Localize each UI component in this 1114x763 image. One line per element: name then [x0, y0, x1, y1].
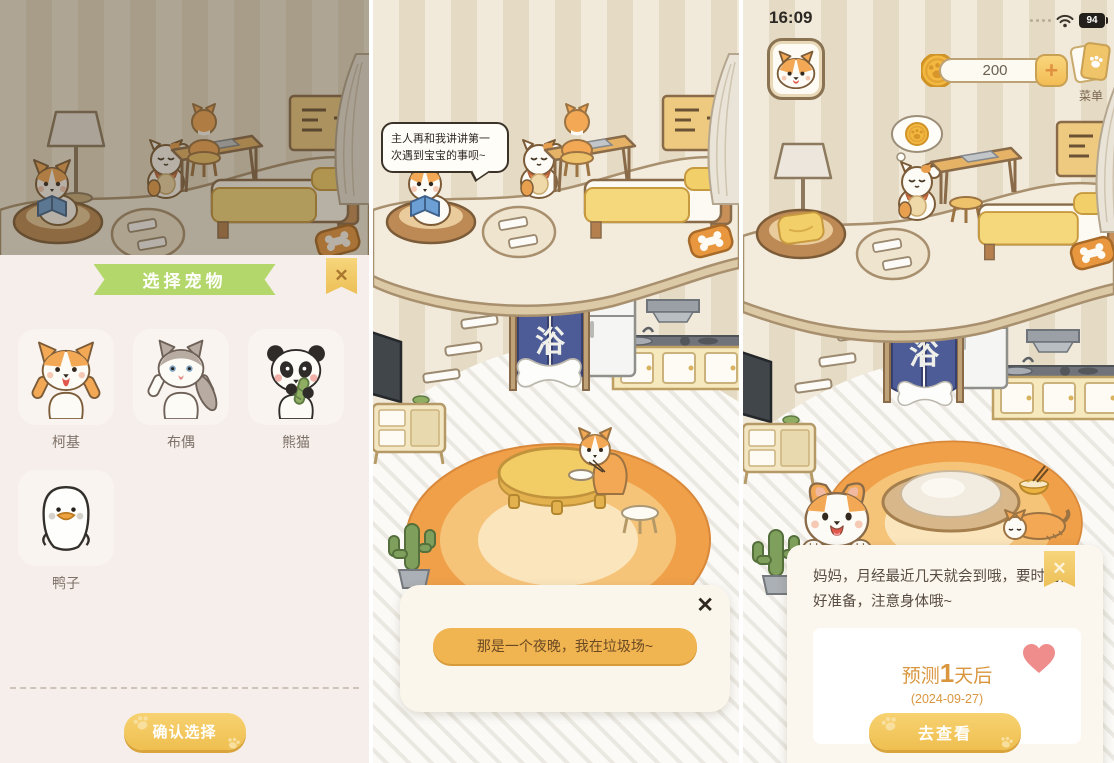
modal-title-ribbon: 选择宠物	[94, 264, 276, 295]
paw-icon	[880, 715, 898, 733]
giant-rice-plate[interactable]	[883, 471, 1019, 531]
loft-hole-stairs	[857, 229, 929, 279]
paw-icon	[132, 714, 150, 732]
prediction-date: (2024-09-27)	[813, 692, 1081, 706]
maneki-neko[interactable]	[899, 162, 940, 220]
status-icons: 94	[1030, 13, 1106, 28]
bath-sign: 浴	[535, 326, 566, 359]
menu-button[interactable]: 菜单	[1068, 42, 1114, 104]
window-curtain	[1097, 82, 1114, 232]
speech-bubble: 主人再和我讲讲第一次遇到宝宝的事呗~	[381, 122, 509, 173]
corgi-at-desk[interactable]	[561, 104, 593, 177]
pet-options-grid: 柯基	[18, 329, 351, 593]
confirm-button[interactable]: 确认选择	[124, 713, 246, 750]
pet-label: 柯基	[18, 432, 114, 452]
pet-option-duck[interactable]: 鸭子	[18, 470, 114, 593]
window-curtain	[709, 54, 739, 204]
heart-icon	[1023, 644, 1055, 673]
close-icon[interactable]: ✕	[326, 258, 357, 294]
close-icon[interactable]: ✕	[696, 593, 714, 618]
ragdoll-illustration	[133, 329, 229, 425]
coin-thought-bubble	[892, 116, 942, 161]
paw-icon	[999, 735, 1013, 749]
screen-room-main: 浴	[743, 0, 1114, 763]
kitchen-counter[interactable]	[993, 330, 1114, 419]
status-time: 16:09	[769, 8, 812, 28]
pet-option-panda[interactable]: 熊猫	[248, 329, 344, 452]
stair-step	[445, 342, 482, 356]
story-dialog: ✕ 那是一个夜晚，我在垃圾场~	[400, 585, 730, 712]
screen-pet-select: ✕ 选择宠物	[0, 0, 369, 763]
battery-icon: 94	[1079, 13, 1105, 28]
coin-icon	[906, 123, 928, 145]
bath-sign: 浴	[909, 338, 940, 371]
corgi-illustration	[18, 329, 114, 425]
stair-step	[819, 353, 856, 367]
menu-cards-icon	[1070, 42, 1112, 86]
paw-icon	[226, 736, 240, 750]
pet-option-corgi[interactable]: 柯基	[18, 329, 114, 452]
modal-title: 选择宠物	[143, 267, 227, 292]
stair-step	[461, 315, 498, 329]
screenshot-collage: ✕ 选择宠物	[0, 0, 1114, 763]
story-option-button[interactable]: 那是一个夜晚，我在垃圾场~	[433, 628, 697, 664]
avatar	[773, 44, 819, 94]
paw-icon	[1088, 55, 1102, 69]
pet-avatar-button[interactable]	[767, 38, 825, 100]
pet-select-modal: ✕ 选择宠物	[0, 255, 369, 763]
pet-option-ragdoll[interactable]: 布偶	[133, 329, 229, 452]
add-coins-button[interactable]: +	[1035, 54, 1068, 87]
pet-label: 布偶	[133, 432, 229, 452]
panda-illustration	[248, 329, 344, 425]
dim-overlay	[0, 0, 369, 258]
menu-label: 菜单	[1068, 87, 1114, 104]
go-check-button[interactable]: 去查看	[869, 713, 1021, 750]
period-prediction-dialog: ✕ 妈妈，月经最近几天就会到哦，要时刻做好准备，注意身体哦~ 预测1天后 (20…	[787, 545, 1103, 763]
screen-room-story: 浴 主人再和我讲讲第一次遇到宝宝的事呗~	[373, 0, 739, 763]
pet-label: 熊猫	[248, 432, 344, 452]
cellular-icon	[1030, 19, 1052, 23]
corgi-face-icon	[778, 52, 815, 89]
loft-hole-stairs	[483, 207, 555, 257]
duck-illustration	[18, 470, 114, 566]
wifi-icon	[1056, 14, 1074, 28]
beanbag-cushion[interactable]	[757, 210, 845, 258]
pet-label: 鸭子	[18, 573, 114, 593]
divider	[10, 687, 359, 689]
